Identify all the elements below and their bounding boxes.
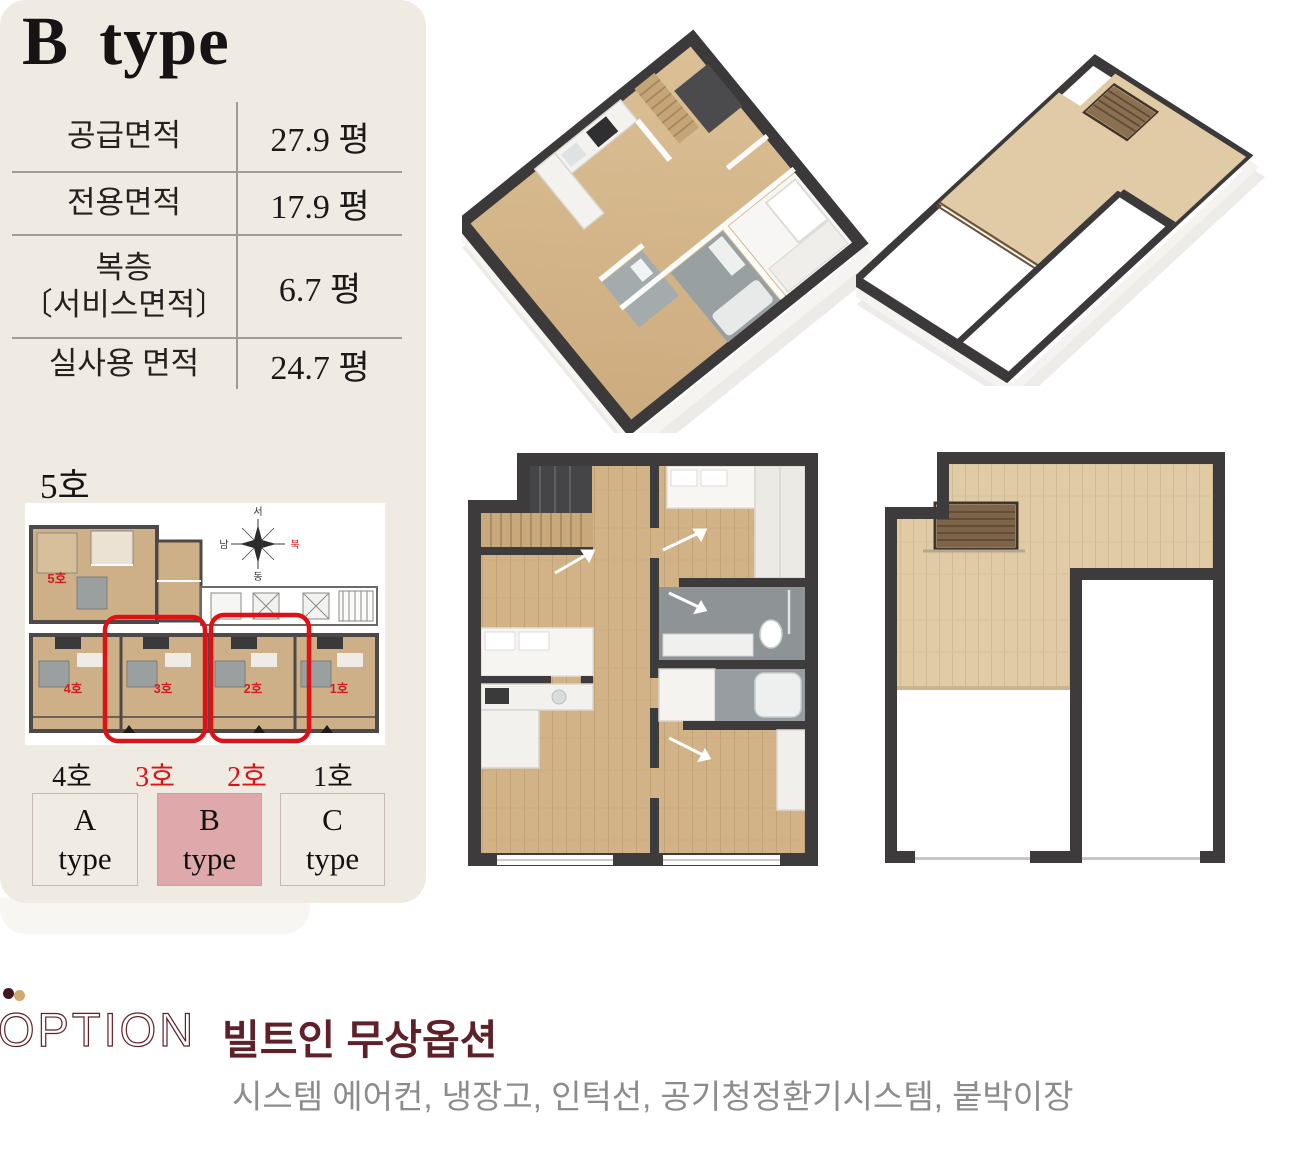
type-button-a[interactable]: A type <box>32 793 138 886</box>
loft-floor-drawing <box>885 452 1225 863</box>
option-logo: OPTION <box>0 1000 226 1062</box>
row-label: 실사용 면적 <box>49 346 199 383</box>
floorplan-3d-lower <box>462 8 874 433</box>
page-title: B type <box>22 2 230 81</box>
type-button-letter: A <box>74 801 96 840</box>
floorplan-2d-loft <box>875 438 1275 908</box>
unit-row-label-3: 3호 <box>135 755 175 795</box>
row-label: 전용면적 <box>67 185 181 222</box>
table-row: 실사용 면적 24.7 평 <box>12 339 402 389</box>
stairs <box>481 513 593 555</box>
unit-row-label-4: 4호 <box>52 755 92 795</box>
floor-5-label: 5호 <box>40 458 90 509</box>
type-button-word: type <box>306 840 359 879</box>
lower-floor-drawing <box>468 453 818 866</box>
table-row: 전용면적 17.9 평 <box>12 173 402 236</box>
site-plan-unit5: 5호 <box>31 527 201 622</box>
b-type-panel: B type 공급면적 27.9 평 전용면적 17.9 평 복층〔서비스면적〕… <box>0 0 426 903</box>
row-value: 27.9 평 <box>238 102 402 171</box>
plan-unit-label: 4호 <box>64 682 83 696</box>
type-button-c[interactable]: C type <box>280 793 385 886</box>
compass-west: 서 <box>253 506 262 518</box>
page: { "panel": { "title": "B type", "area_ta… <box>0 0 1300 1160</box>
plan-unit-label: 2호 <box>244 682 263 696</box>
compass-south: 남 <box>219 539 228 551</box>
wardrobe <box>777 730 805 810</box>
compass-north: 북 <box>290 539 299 551</box>
floorplan-3d-loft <box>856 38 1292 386</box>
type-button-word: type <box>183 840 236 879</box>
row-value: 17.9 평 <box>238 173 402 234</box>
plan-unit-label: 5호 <box>47 571 66 586</box>
option-logo-text: OPTION <box>0 1003 196 1056</box>
iso-lower-plan <box>462 38 860 428</box>
site-plan-image: 5호 서 남 북 <box>25 503 385 745</box>
row-label: 복층 <box>95 250 152 287</box>
plan-unit-label: 1호 <box>330 682 349 696</box>
option-items: 시스템 에어컨, 냉장고, 인턱선, 공기청정환기시스템, 붙박이장 <box>232 1070 1074 1118</box>
stairs-hatch <box>339 591 373 621</box>
watermark-ghost <box>0 898 310 934</box>
option-heading: 빌트인 무상옵션 <box>222 1006 497 1066</box>
type-button-letter: B <box>199 801 220 840</box>
row-label-line2: 〔서비스면적〕 <box>22 287 227 324</box>
floorplan-2d-lower <box>455 438 870 908</box>
bathroom-small <box>659 669 805 730</box>
type-button-b[interactable]: B type <box>157 793 262 886</box>
unit-row-label-1: 1호 <box>313 755 353 795</box>
type-button-word: type <box>58 840 111 879</box>
table-row: 복층〔서비스면적〕 6.7 평 <box>12 236 402 339</box>
area-table: 공급면적 27.9 평 전용면적 17.9 평 복층〔서비스면적〕 6.7 평 … <box>12 102 402 389</box>
logo-dot-dark-icon <box>3 988 14 999</box>
plan-unit-label: 3호 <box>154 682 173 696</box>
window-sill <box>915 857 1030 860</box>
compass-east: 동 <box>253 571 262 583</box>
bedroom-left <box>481 628 593 684</box>
row-label: 공급면적 <box>67 118 181 155</box>
window-sill <box>1082 857 1200 860</box>
row-value: 6.7 평 <box>238 236 402 337</box>
site-plan-corridor <box>201 587 377 625</box>
unit-row-label-2: 2호 <box>227 755 267 795</box>
type-button-letter: C <box>322 801 343 840</box>
table-row: 공급면적 27.9 평 <box>12 102 402 173</box>
row-value: 24.7 평 <box>238 339 402 389</box>
loft-edge <box>897 686 1070 690</box>
